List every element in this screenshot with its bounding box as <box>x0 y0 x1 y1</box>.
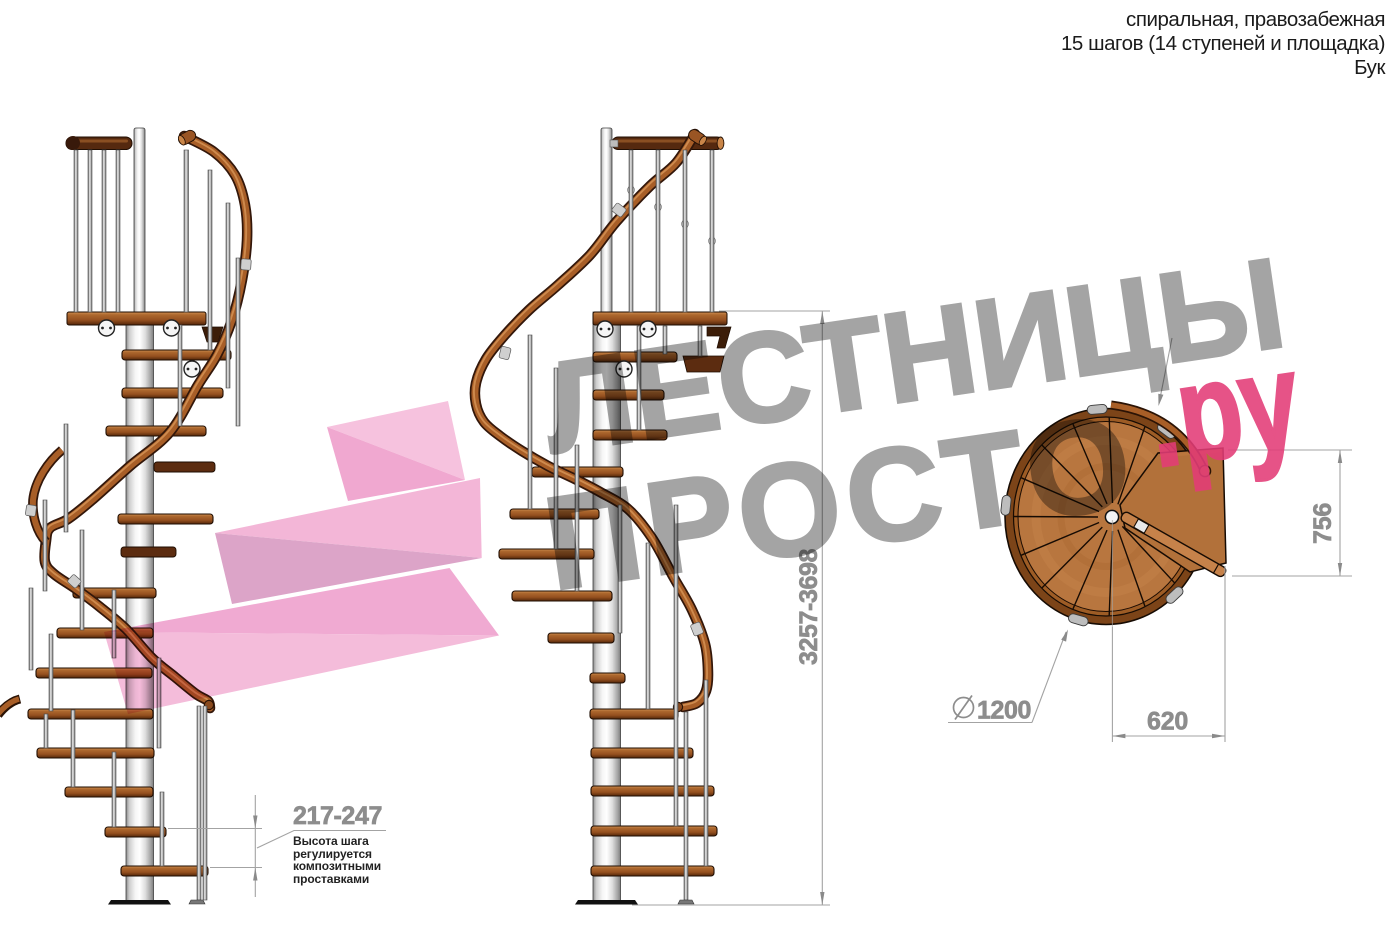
svg-text:756: 756 <box>1309 503 1337 544</box>
svg-text:620: 620 <box>1147 708 1188 736</box>
svg-text:1200: 1200 <box>977 697 1031 725</box>
svg-text:217-247: 217-247 <box>293 802 382 830</box>
svg-text:.ру: .ру <box>1138 323 1309 497</box>
